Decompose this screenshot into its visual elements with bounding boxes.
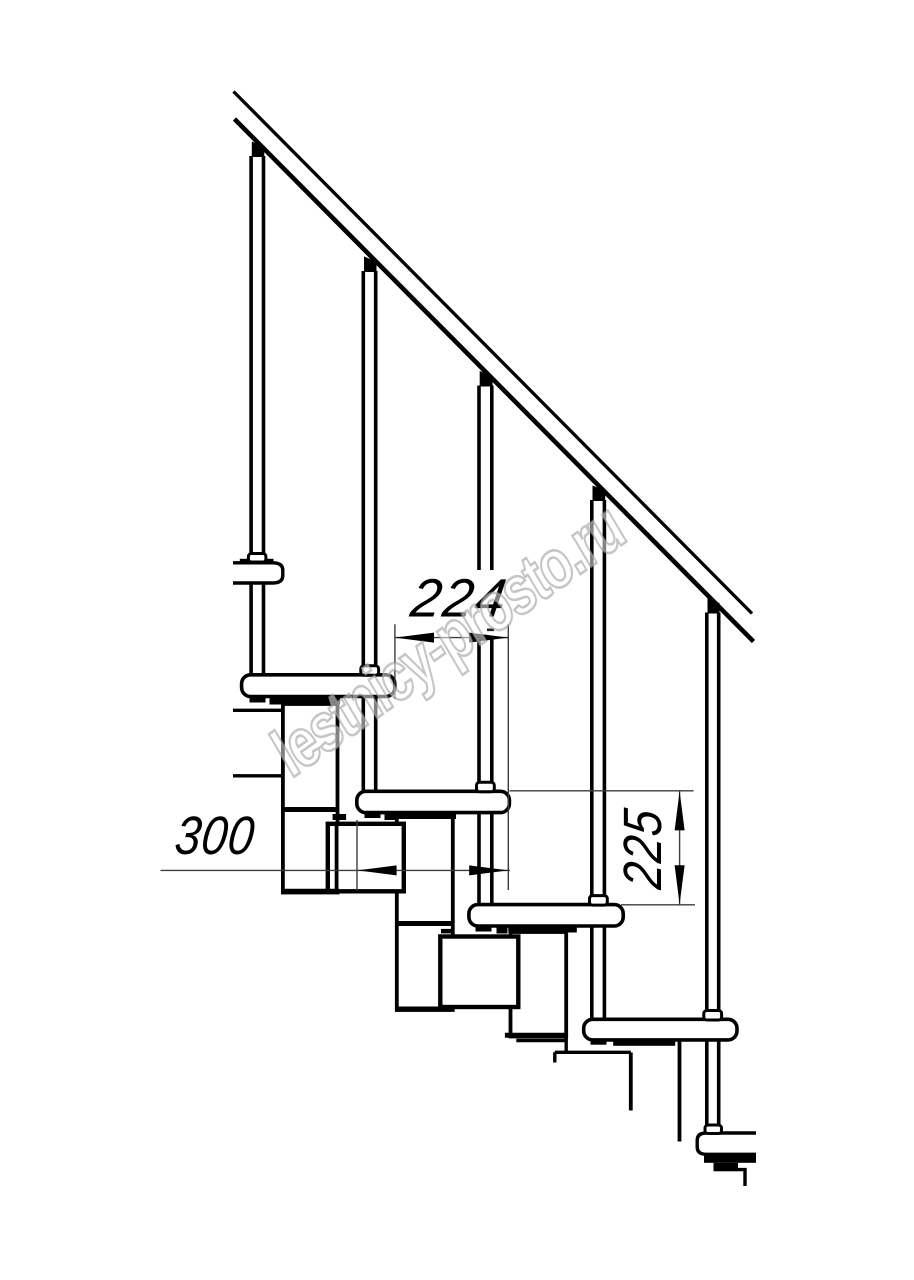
svg-text:225: 225	[612, 805, 673, 892]
svg-text:300: 300	[172, 805, 258, 866]
